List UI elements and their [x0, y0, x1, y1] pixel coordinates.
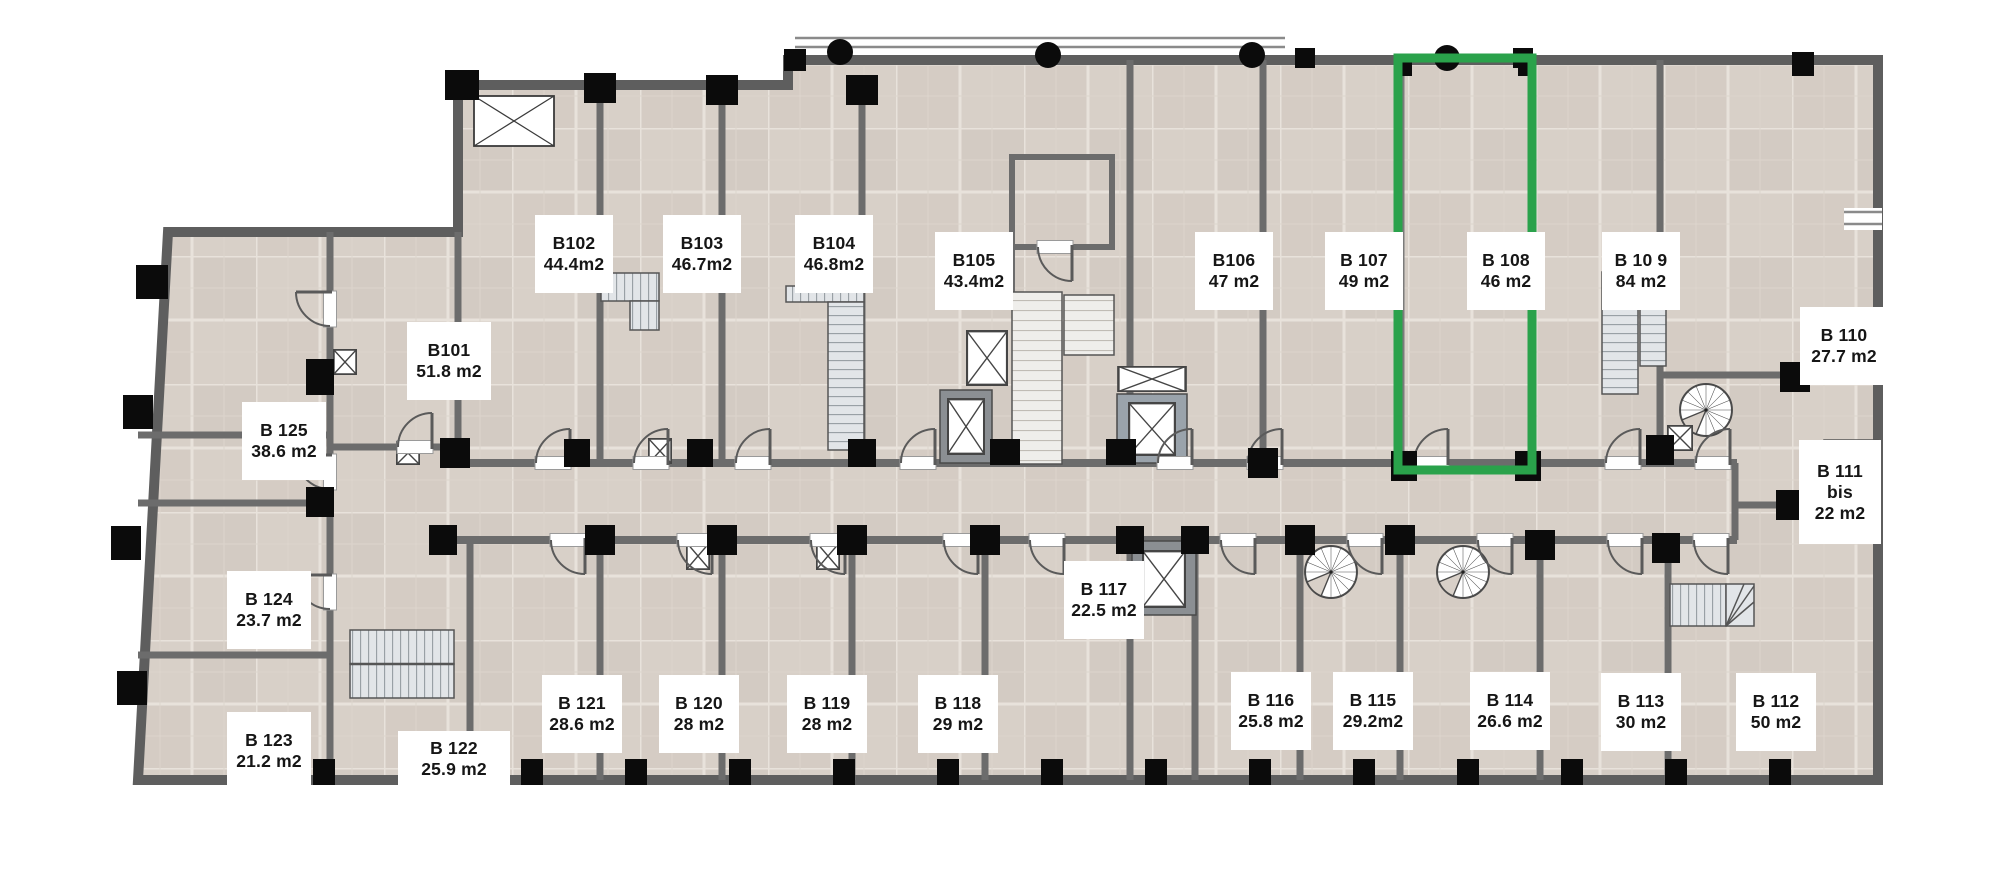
unit-label-b113[interactable]: B 11330 m2 — [1601, 673, 1681, 751]
unit-label-text: 84 m2 — [1616, 271, 1667, 292]
unit-label-text: 26.6 m2 — [1477, 711, 1543, 732]
unit-label-text: 25.8 m2 — [1238, 711, 1304, 732]
unit-label-text: B 115 — [1350, 690, 1397, 711]
unit-label-text: B103 — [681, 233, 724, 254]
unit-label-text: B 111 — [1817, 461, 1863, 482]
unit-label-b102[interactable]: B10244.4m2 — [535, 215, 613, 293]
unit-label-text: B 122 — [430, 738, 478, 759]
unit-label-text: B 125 — [260, 420, 308, 441]
unit-label-b116[interactable]: B 11625.8 m2 — [1231, 672, 1311, 750]
unit-label-b108[interactable]: B 10846 m2 — [1467, 232, 1545, 310]
unit-label-b106[interactable]: B10647 m2 — [1195, 232, 1273, 310]
unit-label-text: B 119 — [804, 693, 851, 714]
unit-label-b109[interactable]: B 10 984 m2 — [1602, 232, 1680, 310]
unit-label-b104[interactable]: B10446.8m2 — [795, 215, 873, 293]
unit-label-text: 23.7 m2 — [236, 610, 302, 631]
unit-label-text: 27.7 m2 — [1811, 346, 1877, 367]
unit-label-text: 30 m2 — [1616, 712, 1667, 733]
unit-label-b125[interactable]: B 12538.6 m2 — [242, 402, 326, 480]
unit-label-text: 46 m2 — [1481, 271, 1532, 292]
unit-label-text: 50 m2 — [1751, 712, 1802, 733]
unit-label-text: B101 — [428, 340, 471, 361]
unit-label-text: B 112 — [1753, 691, 1800, 712]
unit-label-text: B102 — [553, 233, 596, 254]
unit-label-b122[interactable]: B 12225.9 m2 — [398, 731, 510, 787]
unit-label-text: 44.4m2 — [544, 254, 605, 275]
unit-label-text: B 123 — [245, 730, 293, 751]
unit-label-text: bis — [1827, 482, 1853, 503]
unit-label-text: 25.9 m2 — [421, 759, 487, 780]
unit-label-text: 43.4m2 — [944, 271, 1005, 292]
unit-label-b107[interactable]: B 10749 m2 — [1325, 232, 1403, 310]
unit-label-b112[interactable]: B 11250 m2 — [1736, 673, 1816, 751]
unit-label-b117[interactable]: B 11722.5 m2 — [1064, 561, 1144, 639]
unit-label-text: 22.5 m2 — [1071, 600, 1137, 621]
unit-label-text: B 117 — [1081, 579, 1128, 600]
unit-label-text: 29 m2 — [933, 714, 984, 735]
unit-label-text: B104 — [813, 233, 856, 254]
unit-label-text: B 110 — [1821, 325, 1868, 346]
unit-label-b103[interactable]: B10346.7m2 — [663, 215, 741, 293]
unit-label-text: 47 m2 — [1209, 271, 1260, 292]
unit-label-text: 22 m2 — [1815, 503, 1866, 524]
unit-label-text: 49 m2 — [1339, 271, 1390, 292]
unit-label-b123[interactable]: B 12321.2 m2 — [227, 712, 311, 790]
unit-label-b101[interactable]: B10151.8 m2 — [407, 322, 491, 400]
unit-label-text: B 124 — [245, 589, 293, 610]
unit-label-text: 28.6 m2 — [549, 714, 615, 735]
unit-label-b114[interactable]: B 11426.6 m2 — [1470, 672, 1550, 750]
unit-label-b110[interactable]: B 11027.7 m2 — [1800, 307, 1888, 385]
unit-label-text: B106 — [1213, 250, 1256, 271]
unit-label-text: B 10 9 — [1615, 250, 1668, 271]
unit-label-text: B 116 — [1248, 690, 1295, 711]
unit-label-b118[interactable]: B 11829 m2 — [918, 675, 998, 753]
unit-label-text: B105 — [953, 250, 996, 271]
unit-label-b115[interactable]: B 11529.2m2 — [1333, 672, 1413, 750]
unit-label-b124[interactable]: B 12423.7 m2 — [227, 571, 311, 649]
unit-label-text: B 120 — [675, 693, 723, 714]
unit-labels: B10244.4m2B10346.7m2B10446.8m2B10543.4m2… — [0, 0, 2000, 870]
floor-plan: B10244.4m2B10346.7m2B10446.8m2B10543.4m2… — [0, 0, 2000, 870]
unit-label-text: B 108 — [1482, 250, 1530, 271]
unit-label-text: 28 m2 — [802, 714, 853, 735]
unit-label-text: B 118 — [935, 693, 982, 714]
unit-label-text: 46.7m2 — [672, 254, 733, 275]
unit-label-b121[interactable]: B 12128.6 m2 — [542, 675, 622, 753]
unit-label-text: B 113 — [1618, 691, 1665, 712]
unit-label-b120[interactable]: B 12028 m2 — [659, 675, 739, 753]
unit-label-text: 21.2 m2 — [236, 751, 302, 772]
unit-label-text: 38.6 m2 — [251, 441, 317, 462]
unit-label-text: 46.8m2 — [804, 254, 865, 275]
unit-label-b119[interactable]: B 11928 m2 — [787, 675, 867, 753]
unit-label-text: B 114 — [1487, 690, 1534, 711]
unit-label-text: 29.2m2 — [1343, 711, 1404, 732]
unit-label-b111bis[interactable]: B 111bis22 m2 — [1799, 440, 1881, 544]
unit-label-text: 28 m2 — [674, 714, 725, 735]
unit-label-b105[interactable]: B10543.4m2 — [935, 232, 1013, 310]
unit-label-text: B 121 — [558, 693, 606, 714]
unit-label-text: 51.8 m2 — [416, 361, 482, 382]
unit-label-text: B 107 — [1340, 250, 1388, 271]
